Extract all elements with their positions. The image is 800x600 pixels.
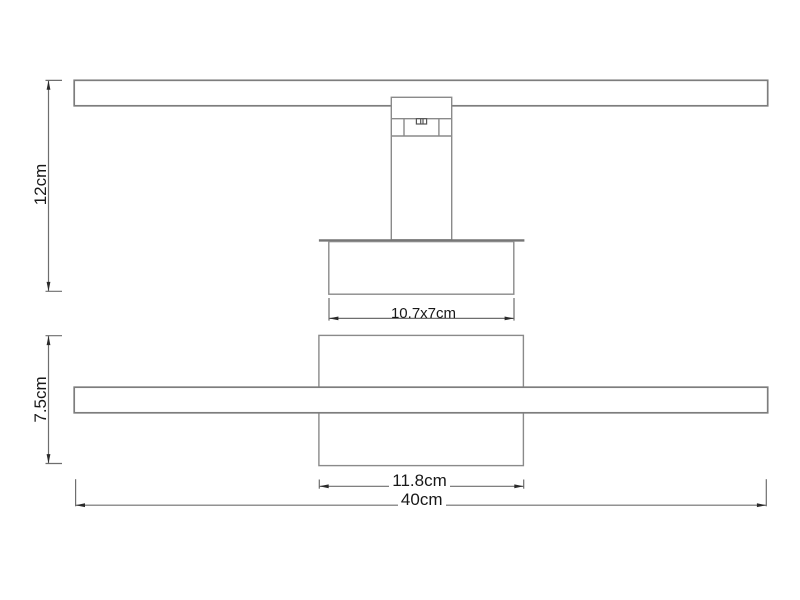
svg-text:7.5cm: 7.5cm — [31, 376, 50, 422]
svg-text:11.8cm: 11.8cm — [392, 471, 447, 490]
svg-text:12cm: 12cm — [31, 164, 50, 206]
svg-text:10.7x7cm: 10.7x7cm — [391, 305, 456, 322]
svg-text:40cm: 40cm — [401, 490, 443, 509]
